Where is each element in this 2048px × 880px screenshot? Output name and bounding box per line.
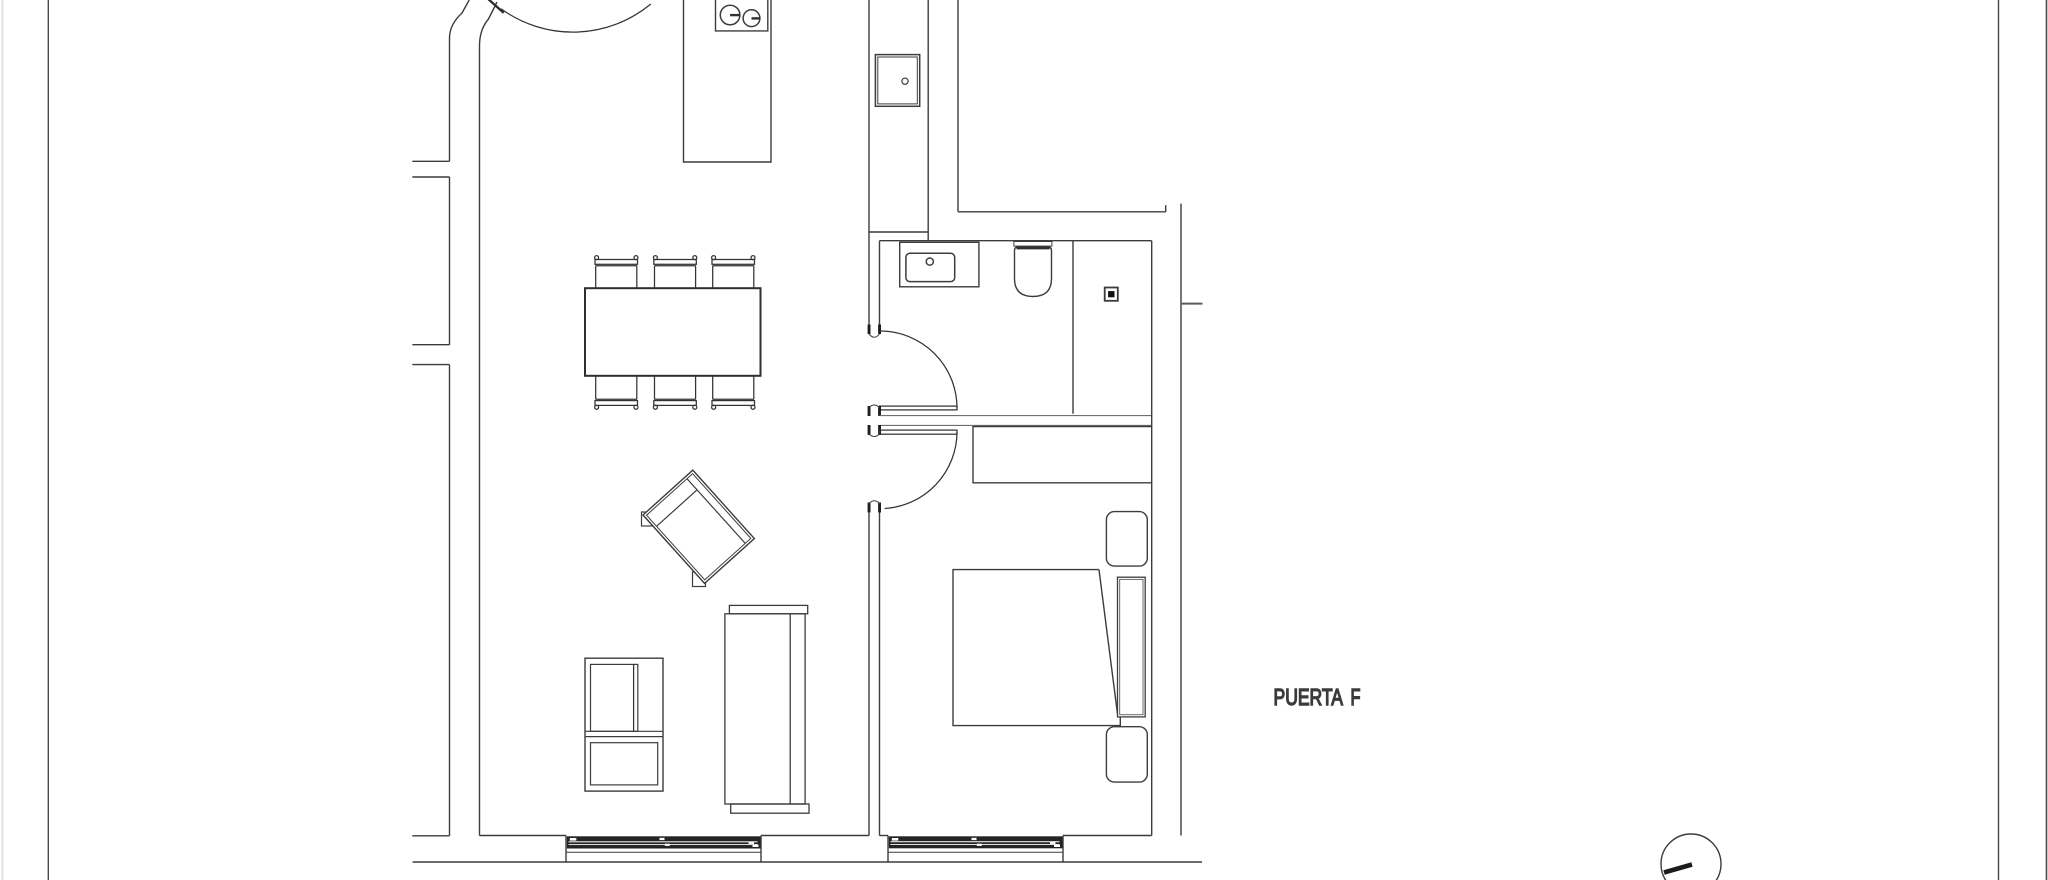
svg-text:F: F bbox=[1351, 684, 1361, 710]
svg-text:PUERTA: PUERTA bbox=[1274, 684, 1344, 710]
